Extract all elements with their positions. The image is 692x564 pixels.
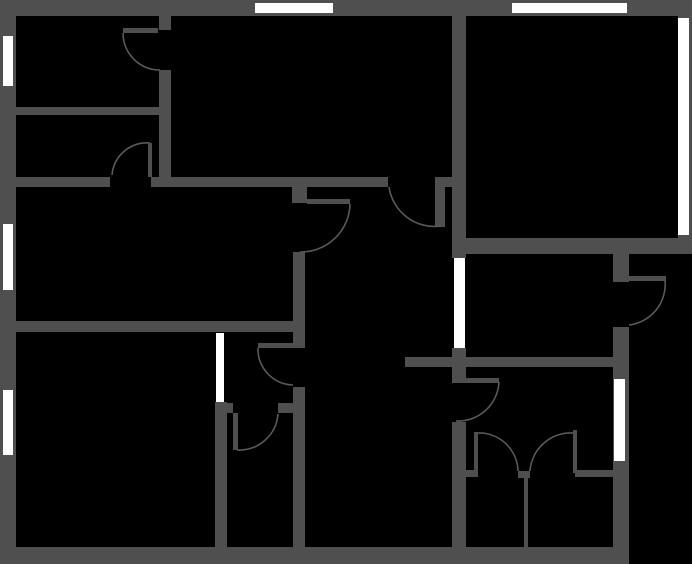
wall-bath-north-west xyxy=(466,470,474,477)
wall-bath-north-center xyxy=(518,471,530,478)
door-arc-anteroom-inner xyxy=(237,414,278,450)
door-leaf-anteroom-inner xyxy=(233,413,238,450)
window-top-left xyxy=(255,3,333,13)
wall-bath-divider xyxy=(524,478,528,547)
exterior-wall-bottom xyxy=(0,547,629,564)
door-arc-hall-east xyxy=(456,382,499,421)
door-leaf-topleft xyxy=(123,28,158,33)
door-arc-bath-left xyxy=(478,433,518,471)
door-arc-roomb xyxy=(112,143,150,175)
opening-bottomleft xyxy=(216,333,224,402)
window-left-top xyxy=(3,36,13,86)
wall-hall-west-pier xyxy=(292,187,307,203)
window-left-middle xyxy=(3,224,13,290)
wall-bottomleft-east xyxy=(215,402,227,547)
door-leaf-hall-east xyxy=(466,378,499,383)
door-arc-hall-west xyxy=(300,204,350,252)
wall-hall-west-lower xyxy=(293,387,305,547)
wall-spine-lower xyxy=(452,422,466,547)
wall-bath-north-east xyxy=(575,470,613,477)
door-leaf-hall-west xyxy=(307,199,350,204)
wall-anteroom-south-east xyxy=(278,403,293,413)
wall-spine-upper xyxy=(452,16,466,258)
door-arc-hall-north xyxy=(389,187,441,226)
wall-topleft-horizontal xyxy=(16,107,159,115)
wall-hall-west-mid xyxy=(293,252,305,348)
door-arc-topleft xyxy=(123,33,160,70)
door-leaf-bath-left xyxy=(474,432,478,477)
door-leaf-anteroom xyxy=(258,343,293,348)
window-top-right xyxy=(512,3,627,13)
exterior-wall-right-lower-stub xyxy=(613,254,629,282)
wall-middle-horizontal xyxy=(405,357,629,367)
door-leaf-roomb xyxy=(148,143,152,177)
wall-topright-south xyxy=(452,238,692,254)
door-arc-anteroom xyxy=(258,348,293,385)
door-leaf-bath-right xyxy=(573,430,577,473)
wall-main-horizontal-east xyxy=(435,177,452,187)
wall-bigroom-south xyxy=(16,321,293,332)
door-leaf-hall-north xyxy=(435,187,445,227)
wall-topleft-vertical-upper xyxy=(159,16,171,30)
window-left-bottom xyxy=(3,390,13,455)
door-arc-bath-right xyxy=(530,433,573,471)
door-arc-layer xyxy=(0,0,692,564)
opening-hall-east xyxy=(454,258,465,348)
window-right-lower xyxy=(614,379,625,461)
wall-topleft-vertical-lower xyxy=(159,70,171,177)
floorplan-canvas xyxy=(0,0,692,564)
wall-main-horizontal-mid xyxy=(151,177,388,187)
door-leaf-balcony xyxy=(628,276,666,281)
wall-anteroom-south-west xyxy=(215,403,233,413)
door-arc-balcony xyxy=(629,280,665,325)
wall-main-horizontal-west xyxy=(16,177,110,187)
window-right xyxy=(678,18,689,235)
